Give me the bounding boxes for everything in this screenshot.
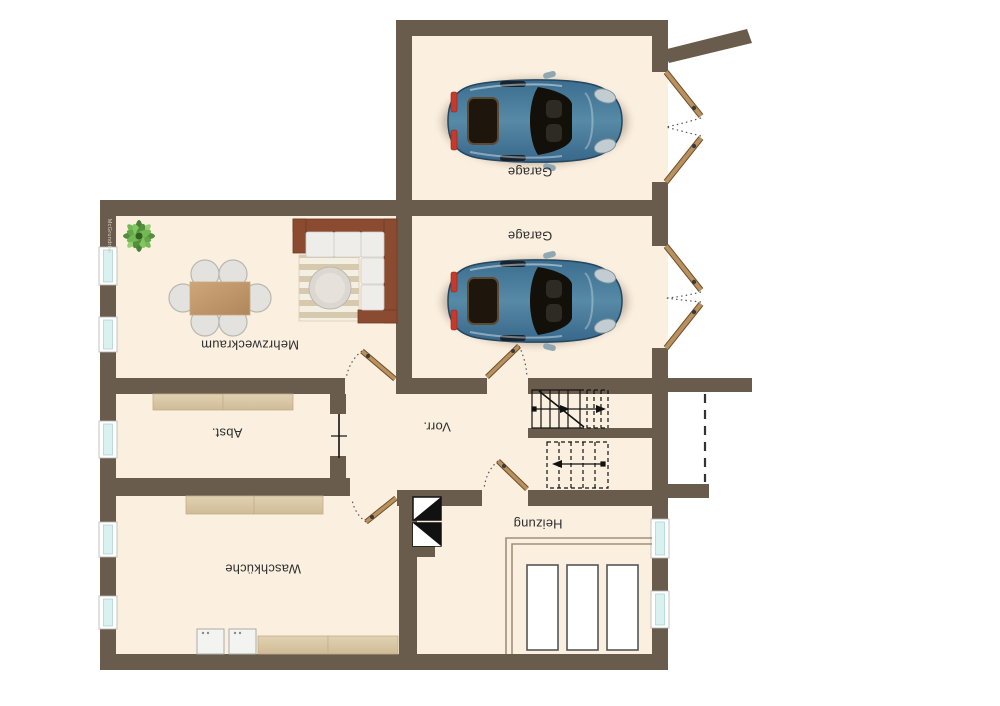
floorplan: Garage Garage Mehrzweckraum Abst. Vorr. … [0, 0, 1000, 706]
garage-door-1 [666, 72, 701, 182]
floorplan-graphics [0, 0, 1000, 706]
garage-door-2 [666, 246, 701, 348]
sofa-set [293, 219, 397, 323]
window-icon [99, 522, 117, 557]
dryer-icon [229, 629, 256, 654]
window-icon [651, 591, 669, 628]
room-label-abstellraum: Abst. [212, 426, 243, 441]
shelf [153, 394, 293, 410]
window-icon [99, 596, 117, 629]
plant-icon [123, 220, 155, 252]
window-icon [99, 421, 117, 458]
room-label-waschkueche: Waschküche [225, 562, 301, 577]
window-icon [651, 519, 669, 558]
room-label-garage-1: Garage [508, 165, 553, 180]
watermark: McGrundriss [106, 219, 112, 253]
room-label-vorraum: Vorr. [423, 420, 451, 435]
room-label-heizung: Heizung [513, 517, 562, 532]
room-label-garage-2: Garage [508, 229, 553, 244]
diagonal-wall-stub [663, 29, 752, 63]
window-icon [99, 317, 117, 352]
room-label-mehrzweckraum: Mehrzweckraum [201, 338, 299, 353]
washer-icon [197, 629, 224, 654]
dining-table [190, 282, 250, 315]
